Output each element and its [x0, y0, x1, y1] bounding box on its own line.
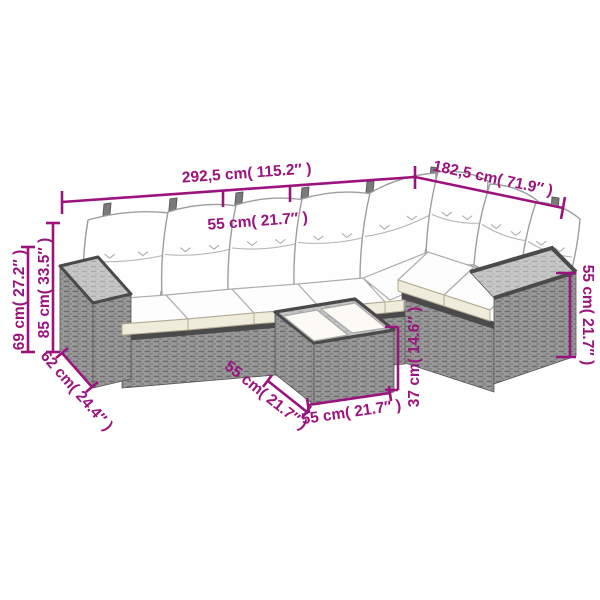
seat-cushion-trim	[385, 300, 404, 313]
product-dimension-diagram: 292,5 cm( 115.2″ ) 182,5 cm( 71.9″ ) 55 …	[0, 0, 600, 600]
label-back-height: 85 cm( 33.5″ )	[36, 238, 53, 338]
label-arm-frame-height: 69 cm( 27.2″ )	[11, 250, 28, 350]
left-armrest-front	[93, 294, 131, 388]
sofa-set-illustration	[60, 167, 580, 405]
diagram-canvas: 292,5 cm( 115.2″ ) 182,5 cm( 71.9″ ) 55 …	[0, 0, 600, 600]
label-sofa-total-width: 292,5 cm( 115.2″ )	[181, 160, 312, 186]
label-right-arm-height: 55 cm( 21.7″ )	[579, 265, 596, 365]
label-table-height: 37 cm( 14.6″ )	[406, 307, 423, 407]
